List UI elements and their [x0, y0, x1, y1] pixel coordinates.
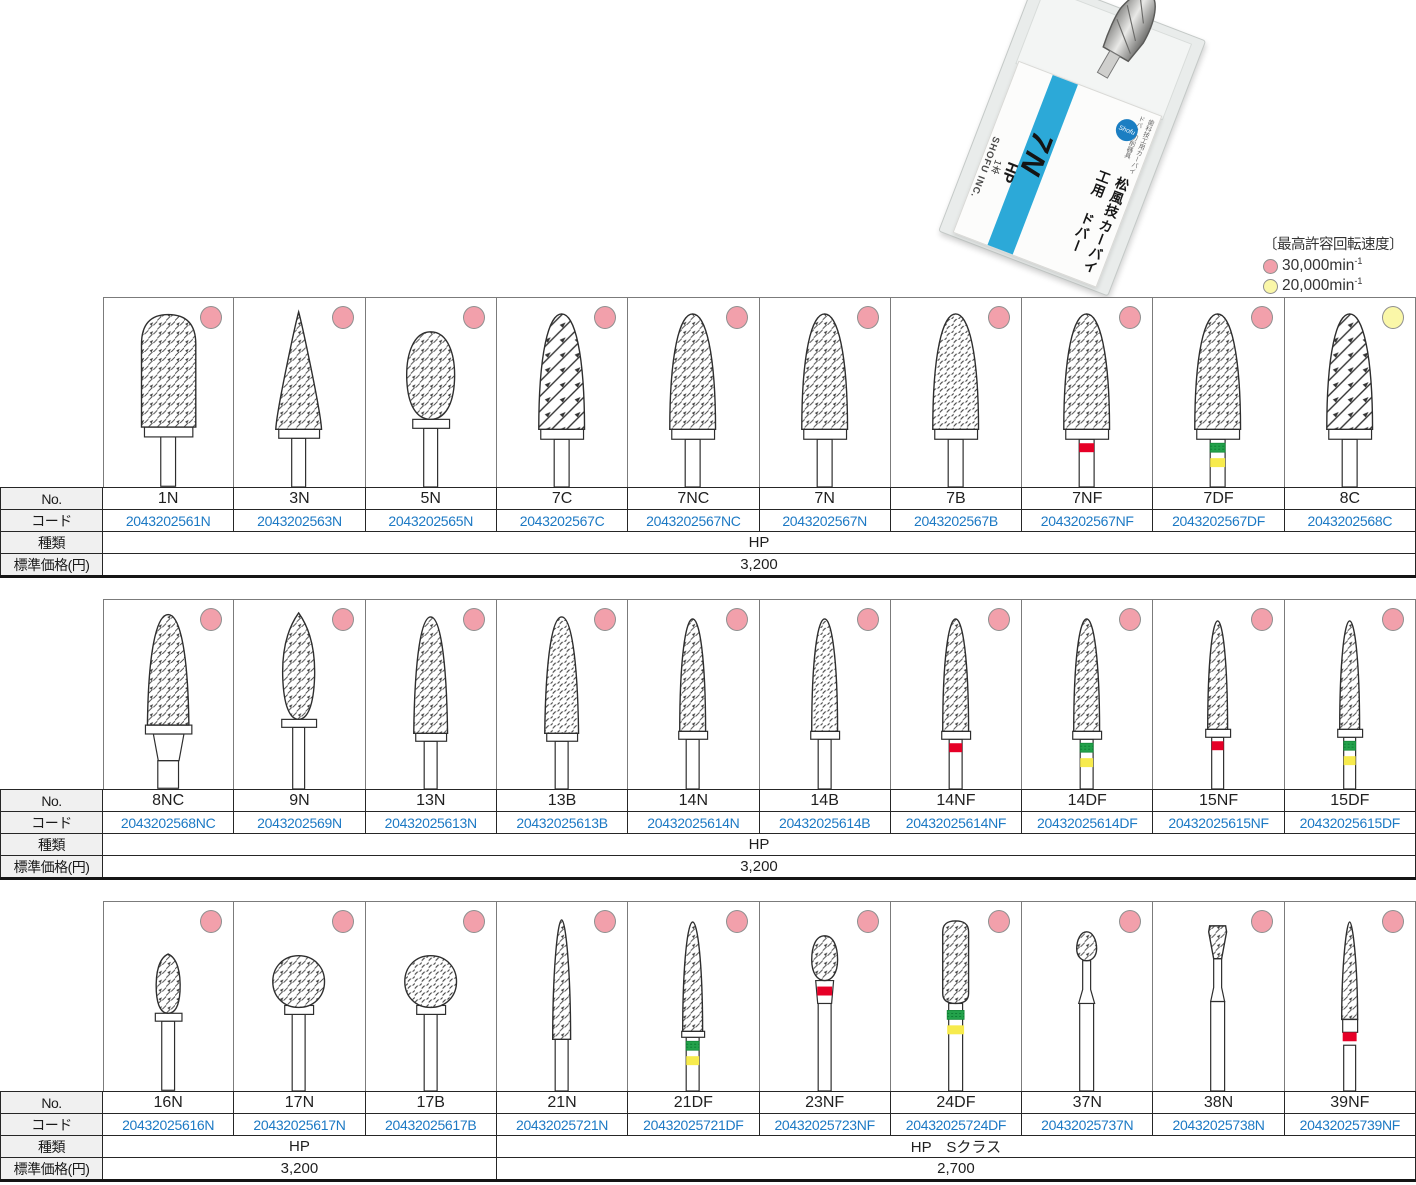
code-cell-8C: 2043202568C	[1285, 509, 1416, 531]
price-group-cell: 3,200	[103, 553, 1416, 575]
code-cell-24DF: 20432025724DF	[891, 1113, 1022, 1135]
code-cell-14N: 20432025614N	[628, 811, 759, 833]
code-cell-7DF: 2043202567DF	[1153, 509, 1284, 531]
bur-illustration-cell-13N	[366, 599, 497, 789]
bur-illustration-cell-17N	[234, 901, 365, 1091]
code-cell-7N: 2043202567N	[760, 509, 891, 531]
no-cell-13B: 13B	[497, 789, 628, 811]
no-cell-38N: 38N	[1153, 1091, 1284, 1113]
no-cell-14N: 14N	[628, 789, 759, 811]
code-cell-7C: 2043202567C	[497, 509, 628, 531]
no-cell-5N: 5N	[366, 487, 497, 509]
pink-speed-dot-icon	[463, 910, 485, 933]
row-label-type: 種類	[0, 1135, 103, 1157]
table-1: No.1N3N5N7C7NC7N7B7NF7DF8Cコード2043202561N…	[0, 297, 1416, 578]
no-cell-1N: 1N	[103, 487, 234, 509]
no-cell-39NF: 39NF	[1285, 1091, 1416, 1113]
bur-illustration-cell-21DF	[628, 901, 759, 1091]
row-label-no: No.	[0, 1091, 103, 1113]
no-cell-24DF: 24DF	[891, 1091, 1022, 1113]
no-cell-7DF: 7DF	[1153, 487, 1284, 509]
yellow-speed-dot-icon	[1382, 306, 1404, 329]
row-label-type: 種類	[0, 833, 103, 855]
row-label-type: 種類	[0, 531, 103, 553]
pink-speed-dot-icon	[332, 306, 354, 329]
pink-speed-dot-icon	[1251, 910, 1273, 933]
bur-illustration-cell-7NF	[1022, 297, 1153, 487]
table-2: No.8NC9N13N13B14N14B14NF14DF15NF15DFコード2…	[0, 599, 1416, 880]
row-label-price: 標準価格(円)	[0, 1157, 103, 1179]
pink-speed-dot-icon	[988, 910, 1010, 933]
bur-illustration-cell-7C	[497, 297, 628, 487]
pink-speed-dot-icon	[857, 910, 879, 933]
code-cell-37N: 20432025737N	[1022, 1113, 1153, 1135]
catalog-tables: No.1N3N5N7C7NC7N7B7NF7DF8Cコード2043202561N…	[0, 297, 1416, 1185]
code-cell-7NC: 2043202567NC	[628, 509, 759, 531]
bur-illustration-cell-16N	[103, 901, 234, 1091]
speed-legend: 〔最高許容回転速度〕 30,000min-1 20,000min-1	[1263, 233, 1415, 296]
pink-speed-dot-icon	[726, 608, 748, 631]
row-label-price: 標準価格(円)	[0, 553, 103, 575]
bur-illustration-cell-21N	[497, 901, 628, 1091]
no-cell-7N: 7N	[760, 487, 891, 509]
row-label-code: コード	[0, 811, 103, 833]
bur-illustration-cell-14DF	[1022, 599, 1153, 789]
code-cell-5N: 2043202565N	[366, 509, 497, 531]
code-cell-21DF: 20432025721DF	[628, 1113, 759, 1135]
code-cell-38N: 20432025738N	[1153, 1113, 1284, 1135]
code-cell-17N: 20432025617N	[234, 1113, 365, 1135]
table-left-spacer	[0, 599, 103, 789]
legend-item-20000: 20,000min-1	[1263, 276, 1415, 296]
no-cell-8C: 8C	[1285, 487, 1416, 509]
row-label-no: No.	[0, 789, 103, 811]
code-cell-3N: 2043202563N	[234, 509, 365, 531]
yellow-speed-dot-icon	[1263, 279, 1278, 294]
code-cell-13N: 20432025613N	[366, 811, 497, 833]
no-cell-14B: 14B	[760, 789, 891, 811]
no-cell-37N: 37N	[1022, 1091, 1153, 1113]
code-cell-14B: 20432025614B	[760, 811, 891, 833]
no-cell-21DF: 21DF	[628, 1091, 759, 1113]
bur-illustration-cell-39NF	[1285, 901, 1416, 1091]
table-left-spacer	[0, 297, 103, 487]
code-cell-14DF: 20432025614DF	[1022, 811, 1153, 833]
code-cell-9N: 2043202569N	[234, 811, 365, 833]
no-cell-7NC: 7NC	[628, 487, 759, 509]
code-cell-13B: 20432025613B	[497, 811, 628, 833]
bur-illustration-cell-15NF	[1153, 599, 1284, 789]
pink-speed-dot-icon	[332, 910, 354, 933]
table-3: No.16N17N17B21N21DF23NF24DF37N38N39NFコード…	[0, 901, 1416, 1182]
bur-illustration-cell-15DF	[1285, 599, 1416, 789]
bur-illustration-cell-5N	[366, 297, 497, 487]
code-cell-17B: 20432025617B	[366, 1113, 497, 1135]
pink-speed-dot-icon	[1382, 910, 1404, 933]
row-label-price: 標準価格(円)	[0, 855, 103, 877]
price-group-cell: 3,200	[103, 1157, 497, 1179]
bur-illustration-cell-7B	[891, 297, 1022, 487]
no-cell-17B: 17B	[366, 1091, 497, 1113]
pink-speed-dot-icon	[1263, 259, 1278, 274]
bur-illustration-cell-38N	[1153, 901, 1284, 1091]
price-group-cell: 2,700	[497, 1157, 1416, 1179]
no-cell-14DF: 14DF	[1022, 789, 1153, 811]
code-cell-21N: 20432025721N	[497, 1113, 628, 1135]
row-label-no: No.	[0, 487, 103, 509]
bur-illustration-cell-9N	[234, 599, 365, 789]
code-cell-15DF: 20432025615DF	[1285, 811, 1416, 833]
pink-speed-dot-icon	[857, 306, 879, 329]
pink-speed-dot-icon	[1382, 608, 1404, 631]
pink-speed-dot-icon	[726, 306, 748, 329]
pink-speed-dot-icon	[726, 910, 748, 933]
code-cell-7B: 2043202567B	[891, 509, 1022, 531]
product-box-photo: 歯科技工用カーバイドバー切削器具 松風技工用 カーバイドバー 7N HP 1本 …	[918, 0, 1218, 294]
no-cell-3N: 3N	[234, 487, 365, 509]
code-cell-39NF: 20432025739NF	[1285, 1113, 1416, 1135]
pink-speed-dot-icon	[1251, 608, 1273, 631]
bur-illustration-cell-24DF	[891, 901, 1022, 1091]
code-cell-8NC: 2043202568NC	[103, 811, 234, 833]
pink-speed-dot-icon	[1251, 306, 1273, 329]
no-cell-17N: 17N	[234, 1091, 365, 1113]
pink-speed-dot-icon	[988, 608, 1010, 631]
no-cell-21N: 21N	[497, 1091, 628, 1113]
pink-speed-dot-icon	[463, 306, 485, 329]
bur-illustration-cell-17B	[366, 901, 497, 1091]
legend-title: 〔最高許容回転速度〕	[1263, 233, 1415, 254]
code-cell-14NF: 20432025614NF	[891, 811, 1022, 833]
type-group-cell: HP Sクラス	[497, 1135, 1416, 1157]
bur-illustration-cell-7DF	[1153, 297, 1284, 487]
bur-illustration-cell-14NF	[891, 599, 1022, 789]
bur-illustration-cell-13B	[497, 599, 628, 789]
table-left-spacer	[0, 901, 103, 1091]
pink-speed-dot-icon	[332, 608, 354, 631]
no-cell-9N: 9N	[234, 789, 365, 811]
type-group-cell: HP	[103, 1135, 497, 1157]
no-cell-7C: 7C	[497, 487, 628, 509]
code-cell-23NF: 20432025723NF	[760, 1113, 891, 1135]
bur-illustration-cell-1N	[103, 297, 234, 487]
code-cell-16N: 20432025616N	[103, 1113, 234, 1135]
pink-speed-dot-icon	[463, 608, 485, 631]
bur-illustration-cell-37N	[1022, 901, 1153, 1091]
row-label-code: コード	[0, 509, 103, 531]
row-label-code: コード	[0, 1113, 103, 1135]
bur-illustration-cell-23NF	[760, 901, 891, 1091]
catalog-page: 歯科技工用カーバイドバー切削器具 松風技工用 カーバイドバー 7N HP 1本 …	[0, 0, 1416, 1185]
bur-illustration-cell-3N	[234, 297, 365, 487]
type-group-cell: HP	[103, 833, 1416, 855]
legend-item-30000: 30,000min-1	[1263, 256, 1415, 276]
bur-illustration-cell-14B	[760, 599, 891, 789]
no-cell-16N: 16N	[103, 1091, 234, 1113]
bur-illustration-cell-7NC	[628, 297, 759, 487]
no-cell-14NF: 14NF	[891, 789, 1022, 811]
no-cell-7B: 7B	[891, 487, 1022, 509]
no-cell-23NF: 23NF	[760, 1091, 891, 1113]
bur-illustration-cell-8C	[1285, 297, 1416, 487]
code-cell-15NF: 20432025615NF	[1153, 811, 1284, 833]
type-group-cell: HP	[103, 531, 1416, 553]
no-cell-7NF: 7NF	[1022, 487, 1153, 509]
price-group-cell: 3,200	[103, 855, 1416, 877]
legend-label-20000: 20,000min-1	[1282, 276, 1362, 295]
code-cell-1N: 2043202561N	[103, 509, 234, 531]
pink-speed-dot-icon	[988, 306, 1010, 329]
no-cell-15NF: 15NF	[1153, 789, 1284, 811]
code-cell-7NF: 2043202567NF	[1022, 509, 1153, 531]
no-cell-15DF: 15DF	[1285, 789, 1416, 811]
pink-speed-dot-icon	[857, 608, 879, 631]
bur-illustration-cell-7N	[760, 297, 891, 487]
bur-illustration-cell-14N	[628, 599, 759, 789]
no-cell-8NC: 8NC	[103, 789, 234, 811]
bur-illustration-cell-8NC	[103, 599, 234, 789]
legend-label-30000: 30,000min-1	[1282, 256, 1362, 275]
no-cell-13N: 13N	[366, 789, 497, 811]
